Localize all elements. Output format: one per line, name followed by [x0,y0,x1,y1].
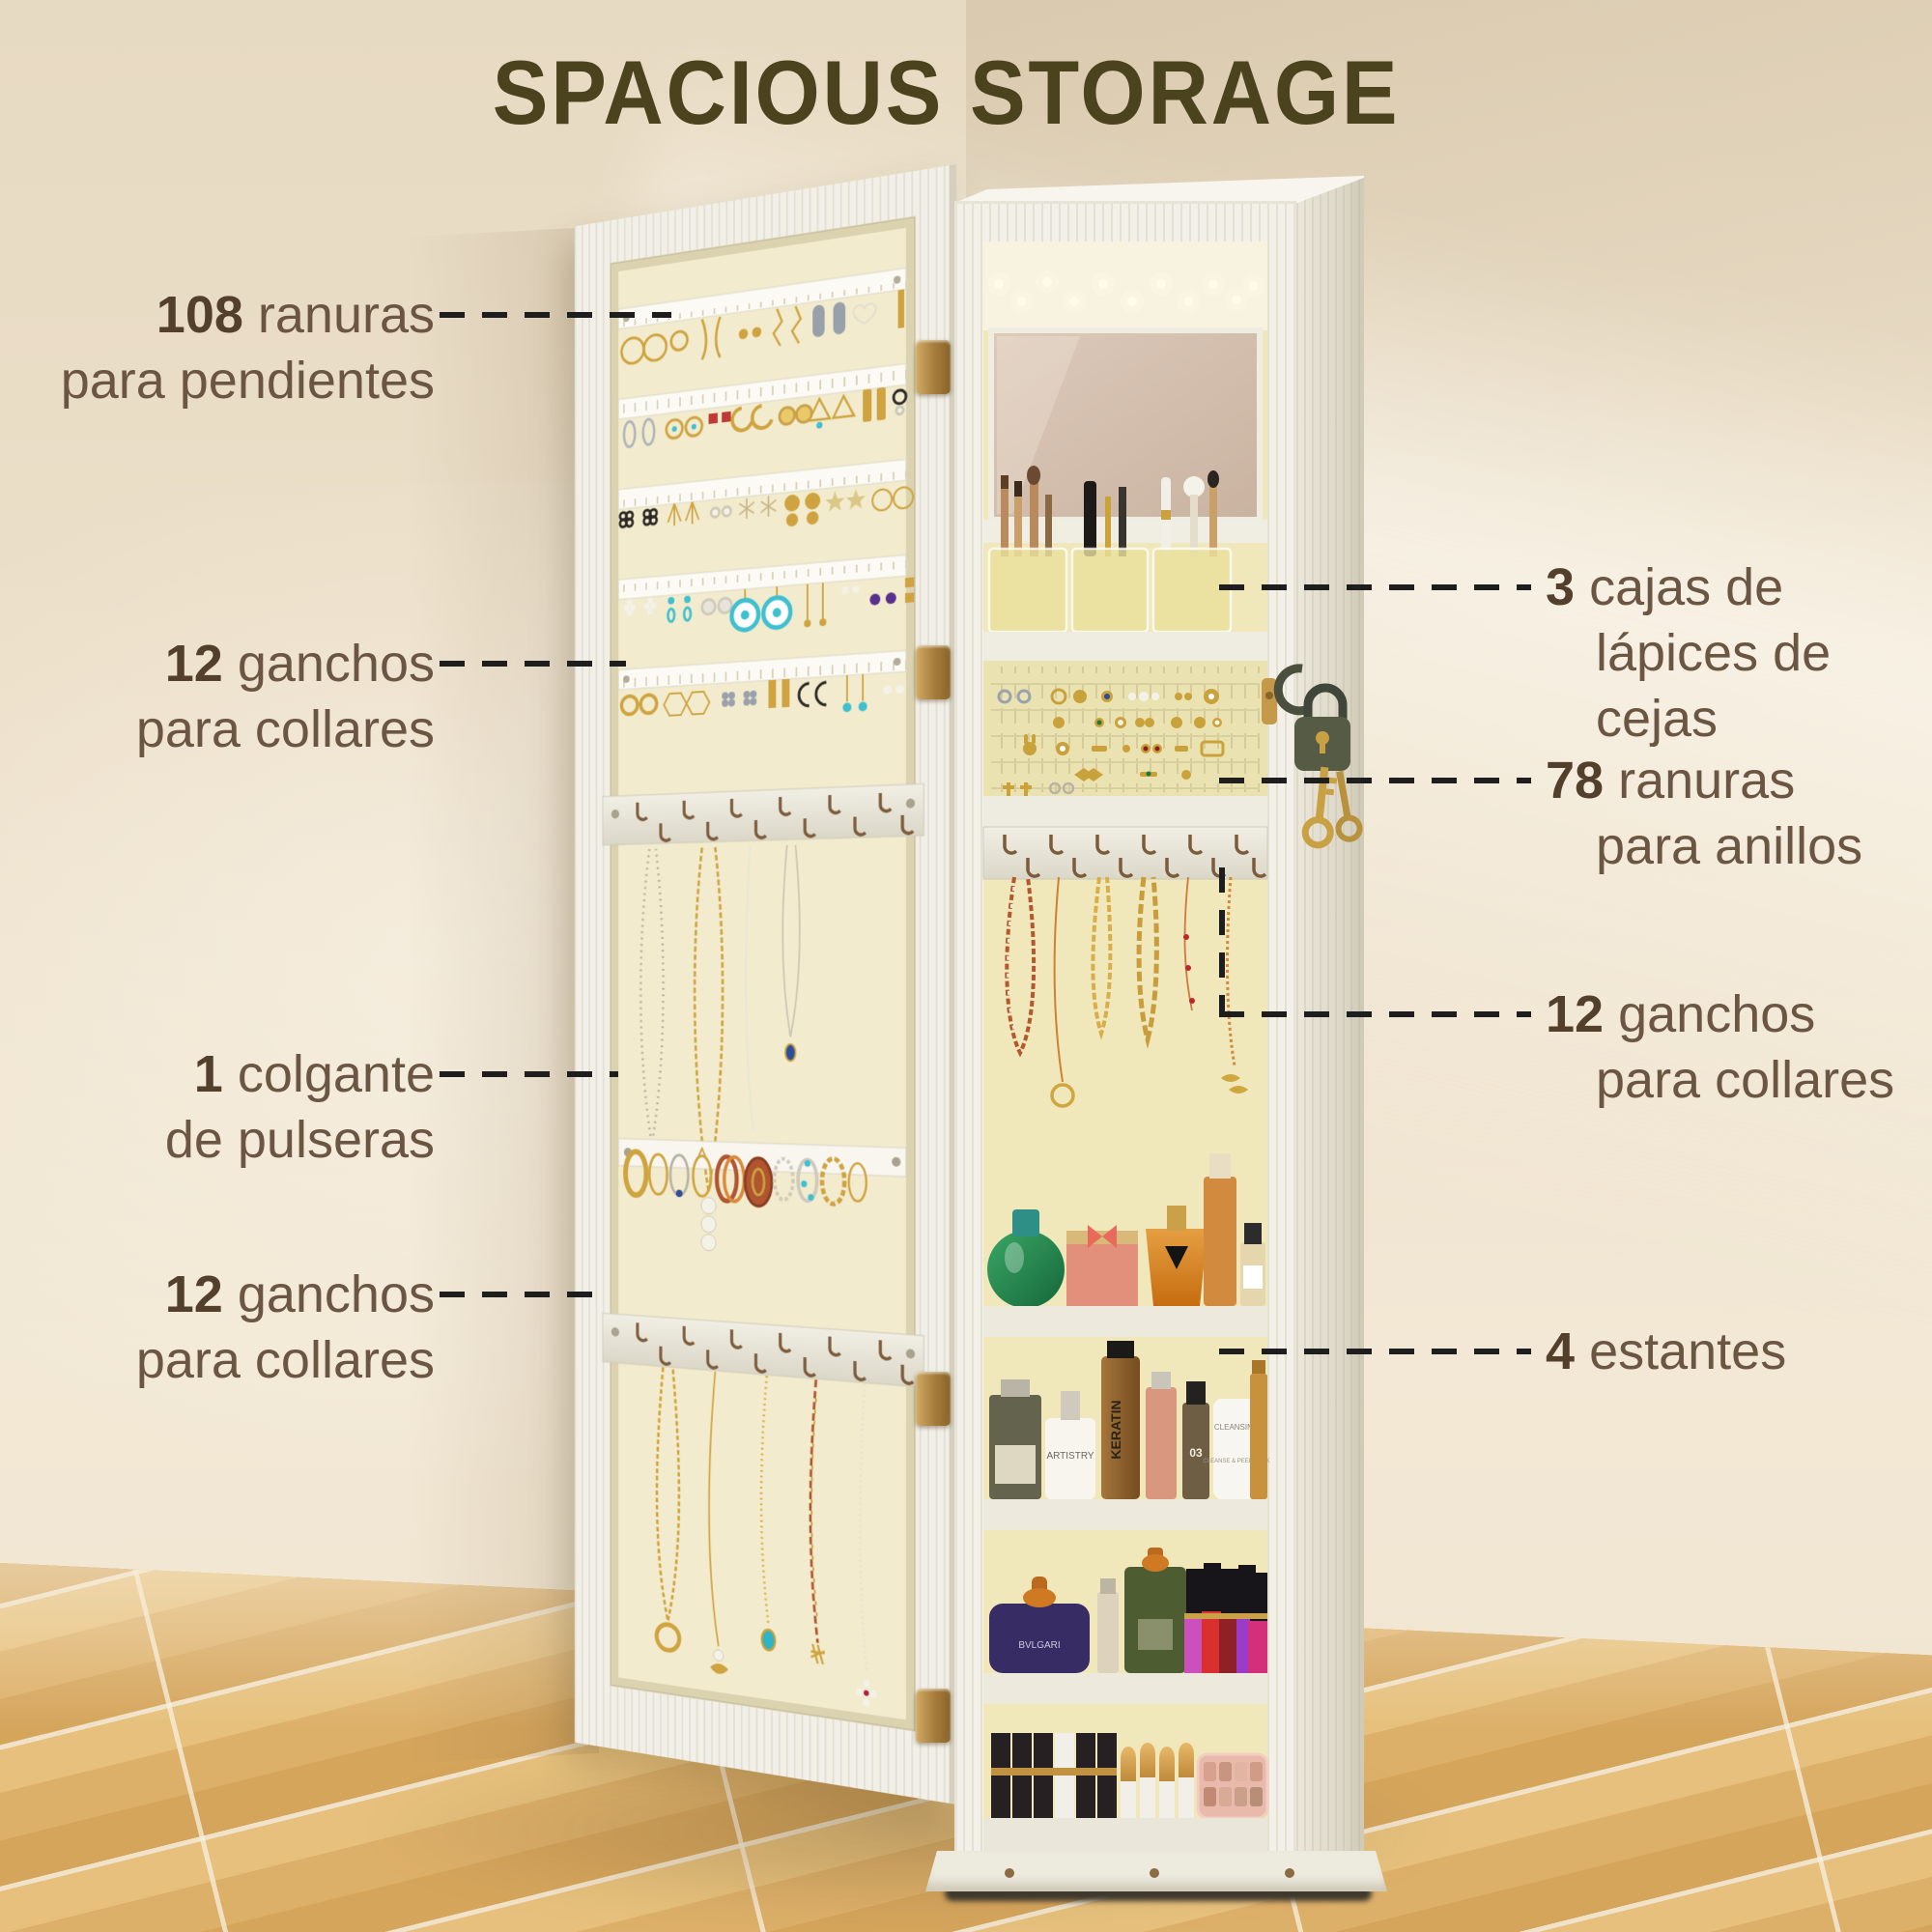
callout-text: para pendientes [29,348,435,413]
hinge [916,1689,951,1743]
callout-text: 12 ganchos [29,1262,435,1327]
callout-ring-slots: 78 ranuras para anillos [1546,748,1932,879]
callout-shelves: 4 estantes [1546,1319,1932,1384]
callout-number: 4 [1546,1322,1575,1380]
ring-slot-panel [983,661,1267,796]
cabinet-interior-graphic: ARTISTRY KERATIN 03 CLEANSING CLEANSE & … [954,201,1296,1860]
leader-line [440,1292,597,1297]
callout-number: 3 [1546,558,1575,616]
callout-text: para collares [29,1327,435,1393]
product-label: 03 [1189,1446,1203,1460]
page-title: SPACIOUS STORAGE [493,41,1401,145]
callout-earring-slots: 108 ranuras para pendientes [29,282,435,413]
callout-text: 12 ganchos [1546,981,1932,1047]
leader-line-elbow [1219,867,1225,1014]
callout-text: 3 cajas de [1546,554,1932,620]
jewelry-cabinet-body: ARTISTRY KERATIN 03 CLEANSING CLEANSE & … [954,201,1296,1860]
screw [1150,1868,1159,1878]
callout-text: para anillos [1546,813,1932,879]
callout-number: 108 [156,286,243,344]
callout-text: de pulseras [29,1107,435,1173]
leader-line [1219,778,1531,783]
callout-bracelet-hanger: 1 colgante de pulseras [29,1041,435,1173]
callout-text: 78 ranuras [1546,748,1932,813]
callout-text: para collares [1546,1047,1932,1113]
door-wall-shadow [406,227,599,1763]
product-label: ARTISTRY [1046,1451,1094,1462]
hinge [916,340,951,394]
product-label: BVLGARI [1018,1640,1060,1651]
product-label: KERATIN [1108,1400,1123,1459]
cabinet-side-panel [1296,178,1364,1886]
callout-text: 12 ganchos [29,631,435,696]
callout-number: 1 [194,1045,223,1103]
callout-number: 78 [1546,752,1604,810]
jewelry-cabinet-door [575,164,956,1804]
callout-number: 12 [1546,985,1604,1043]
leader-line [440,661,626,667]
callout-text: 4 estantes [1546,1319,1932,1384]
leader-line [1219,584,1531,590]
callout-number: 12 [165,635,223,693]
leader-line [440,1071,618,1077]
callout-necklace-hooks-door-2: 12 ganchos para collares [29,1262,435,1393]
callout-necklace-hooks-door: 12 ganchos para collares [29,631,435,762]
callout-necklace-hooks-cabinet: 12 ganchos para collares [1546,981,1932,1113]
screw [1285,1868,1294,1878]
hinge [916,1372,951,1426]
callout-text: para collares [29,696,435,762]
hinge [916,645,951,699]
scene: ARTISTRY KERATIN 03 CLEANSING CLEANSE & … [0,0,1932,1932]
leader-line [1219,1011,1531,1017]
callout-text: 108 ranuras [29,282,435,348]
callout-pencil-boxes: 3 cajas de lápices de cejas [1546,554,1932,752]
callout-text: 1 colgante [29,1041,435,1107]
screw [1005,1868,1014,1878]
callout-number: 12 [165,1265,223,1323]
lock-and-keys [1252,653,1397,856]
leader-line [1219,1349,1531,1354]
callout-text: lápices de cejas [1546,620,1932,752]
leader-line [440,312,671,318]
door-interior-graphic [575,164,956,1804]
